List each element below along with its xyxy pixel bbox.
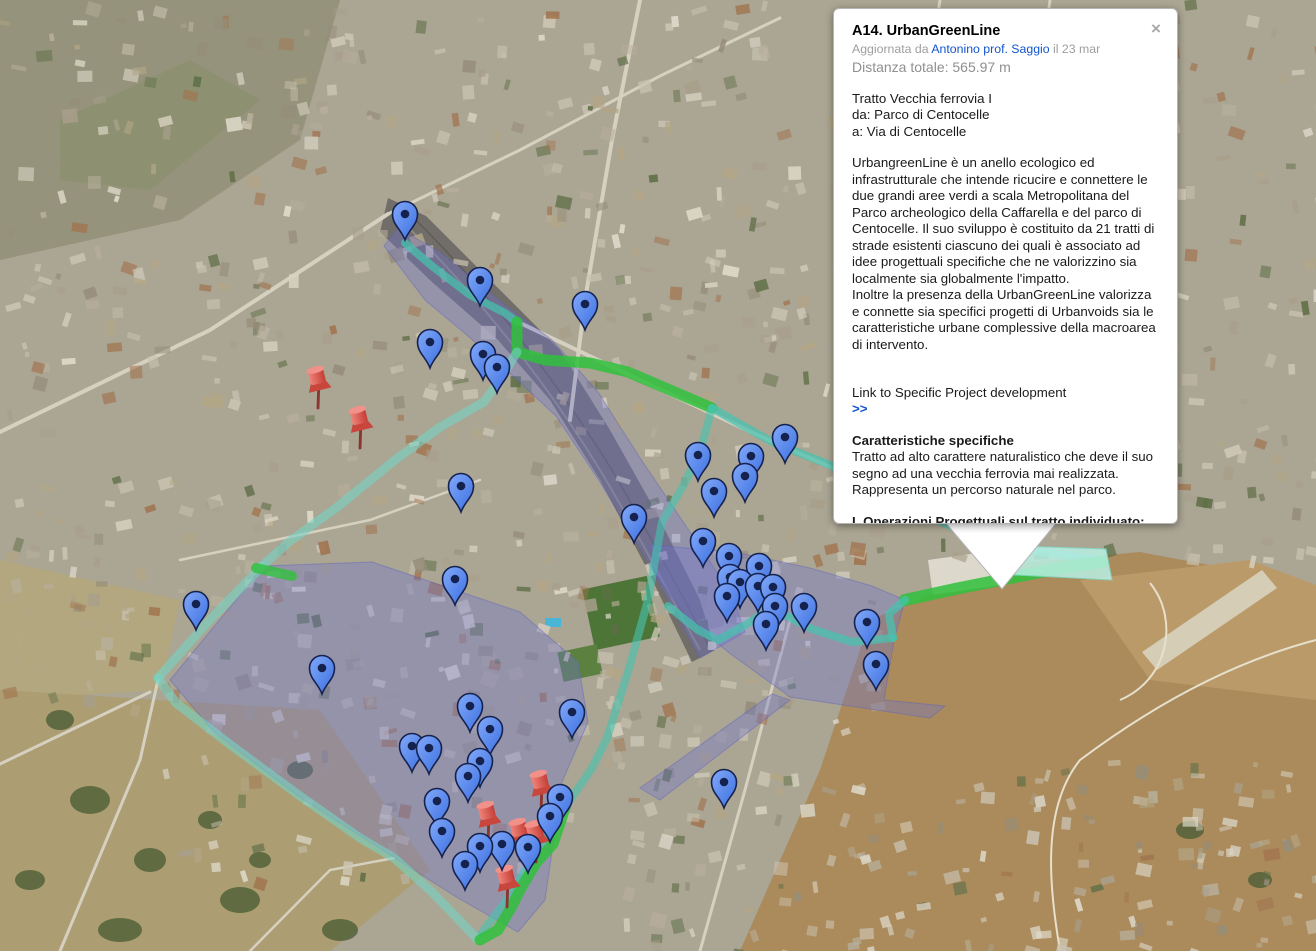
project-description: UrbangreenLine è un anello ecologico ed … xyxy=(852,155,1159,353)
popup-meta: Aggiornata da Antonino prof. Saggio il 2… xyxy=(852,42,1159,57)
meta-suffix: il 23 mar xyxy=(1053,42,1100,56)
popup-title: A14. UrbanGreenLine xyxy=(852,23,1159,40)
close-icon[interactable]: × xyxy=(1148,21,1164,37)
section-body-caratteristiche: Tratto ad alto carattere naturalistico c… xyxy=(852,449,1159,498)
section-heading-caratteristiche: Caratteristiche specifiche xyxy=(852,433,1159,449)
meta-prefix: Aggiornata da xyxy=(852,42,929,56)
project-link-line: Link to Specific Project development >> xyxy=(852,368,1159,417)
info-window: × A14. UrbanGreenLine Aggiornata da Anto… xyxy=(833,8,1178,524)
route-endpoints: Tratto Vecchia ferrovia I da: Parco di C… xyxy=(852,91,1159,140)
map-application: × A14. UrbanGreenLine Aggiornata da Anto… xyxy=(0,0,1316,951)
link-text: Link to Specific Project development xyxy=(852,385,1066,400)
link-arrows[interactable]: >> xyxy=(852,401,868,416)
total-distance: Distanza totale: 565.97 m xyxy=(852,59,1159,76)
section-heading-operazioni: I. Operazioni Progettuali sul tratto ind… xyxy=(852,514,1159,524)
author-link[interactable]: Antonino prof. Saggio xyxy=(931,42,1049,56)
